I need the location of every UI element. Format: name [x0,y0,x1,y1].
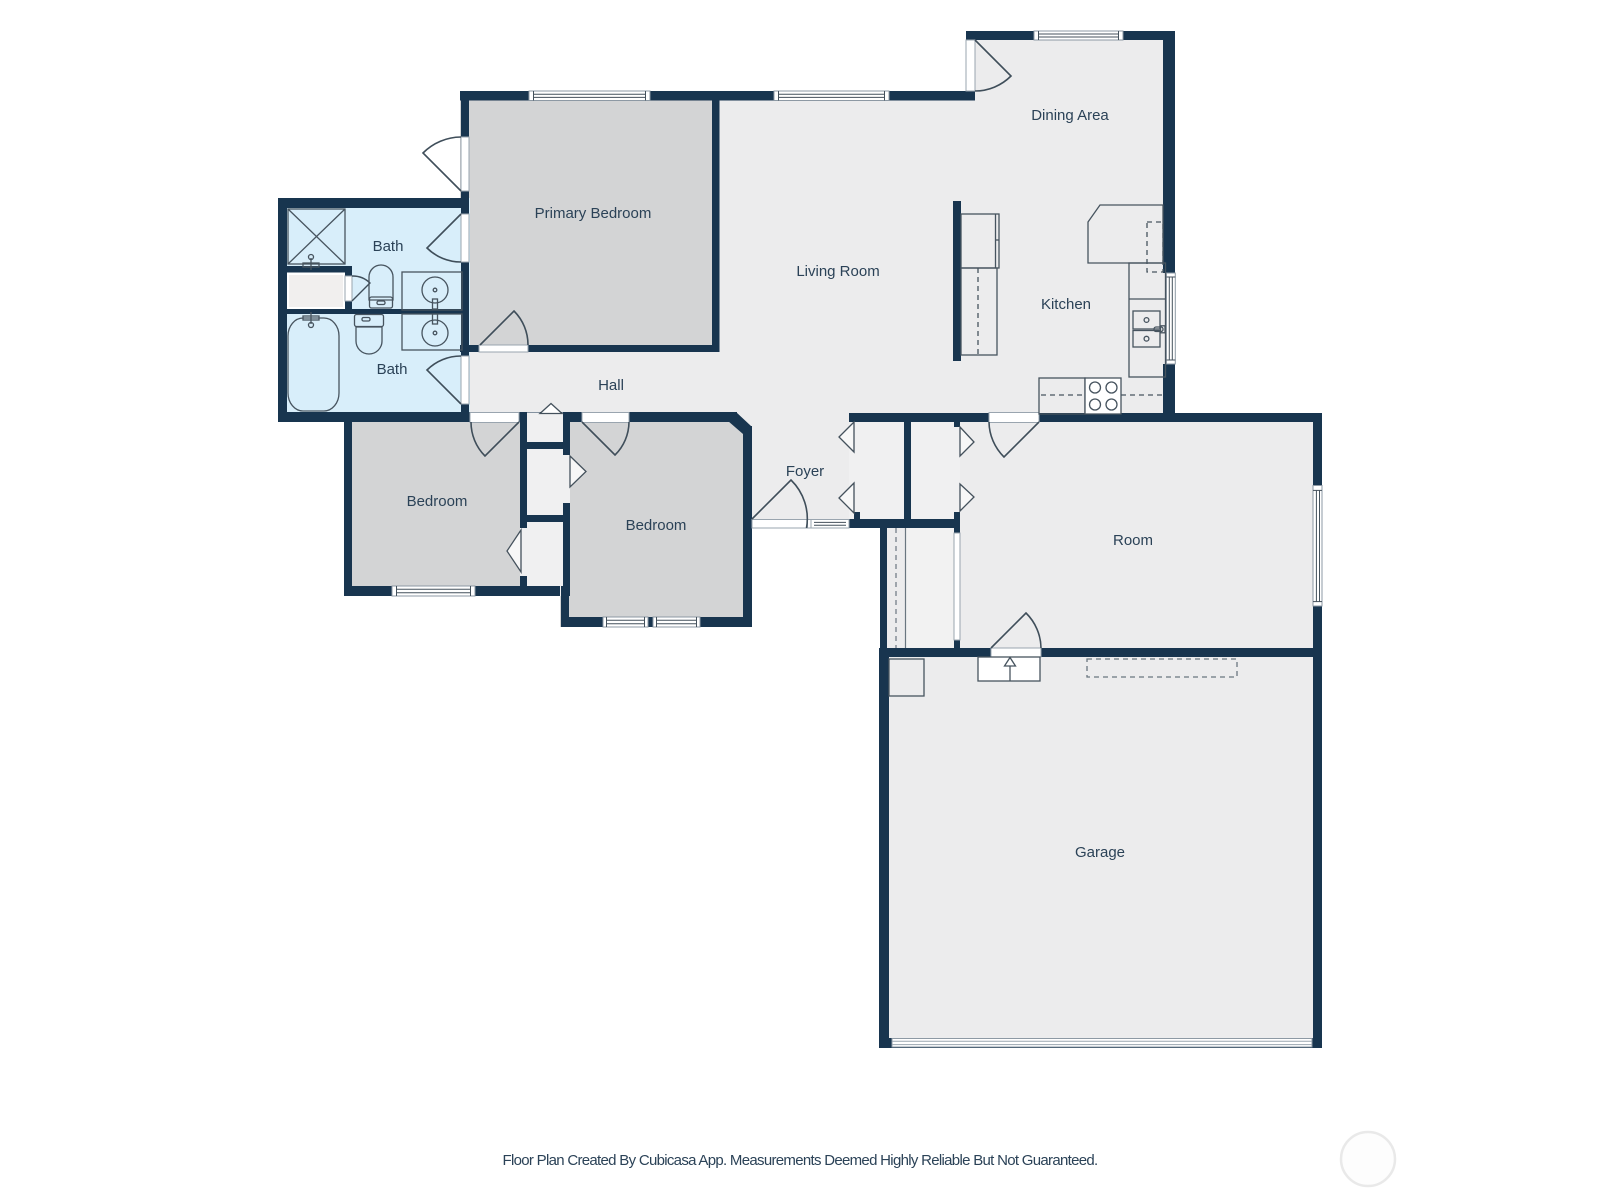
svg-text:Foyer: Foyer [786,463,824,480]
svg-text:Bath: Bath [377,361,408,378]
svg-text:Primary Bedroom: Primary Bedroom [535,205,652,222]
svg-text:Hall: Hall [598,377,624,394]
svg-text:Bedroom: Bedroom [407,493,468,510]
svg-text:Bedroom: Bedroom [626,517,687,534]
svg-text:Living Room: Living Room [796,263,879,280]
svg-text:Room: Room [1113,532,1153,549]
svg-text:Bath: Bath [373,238,404,255]
svg-text:Dining Area: Dining Area [1031,107,1109,124]
svg-text:Floor Plan Created By Cubicasa: Floor Plan Created By Cubicasa App. Meas… [503,1152,1098,1169]
svg-text:Garage: Garage [1075,844,1125,861]
svg-text:Kitchen: Kitchen [1041,296,1091,313]
